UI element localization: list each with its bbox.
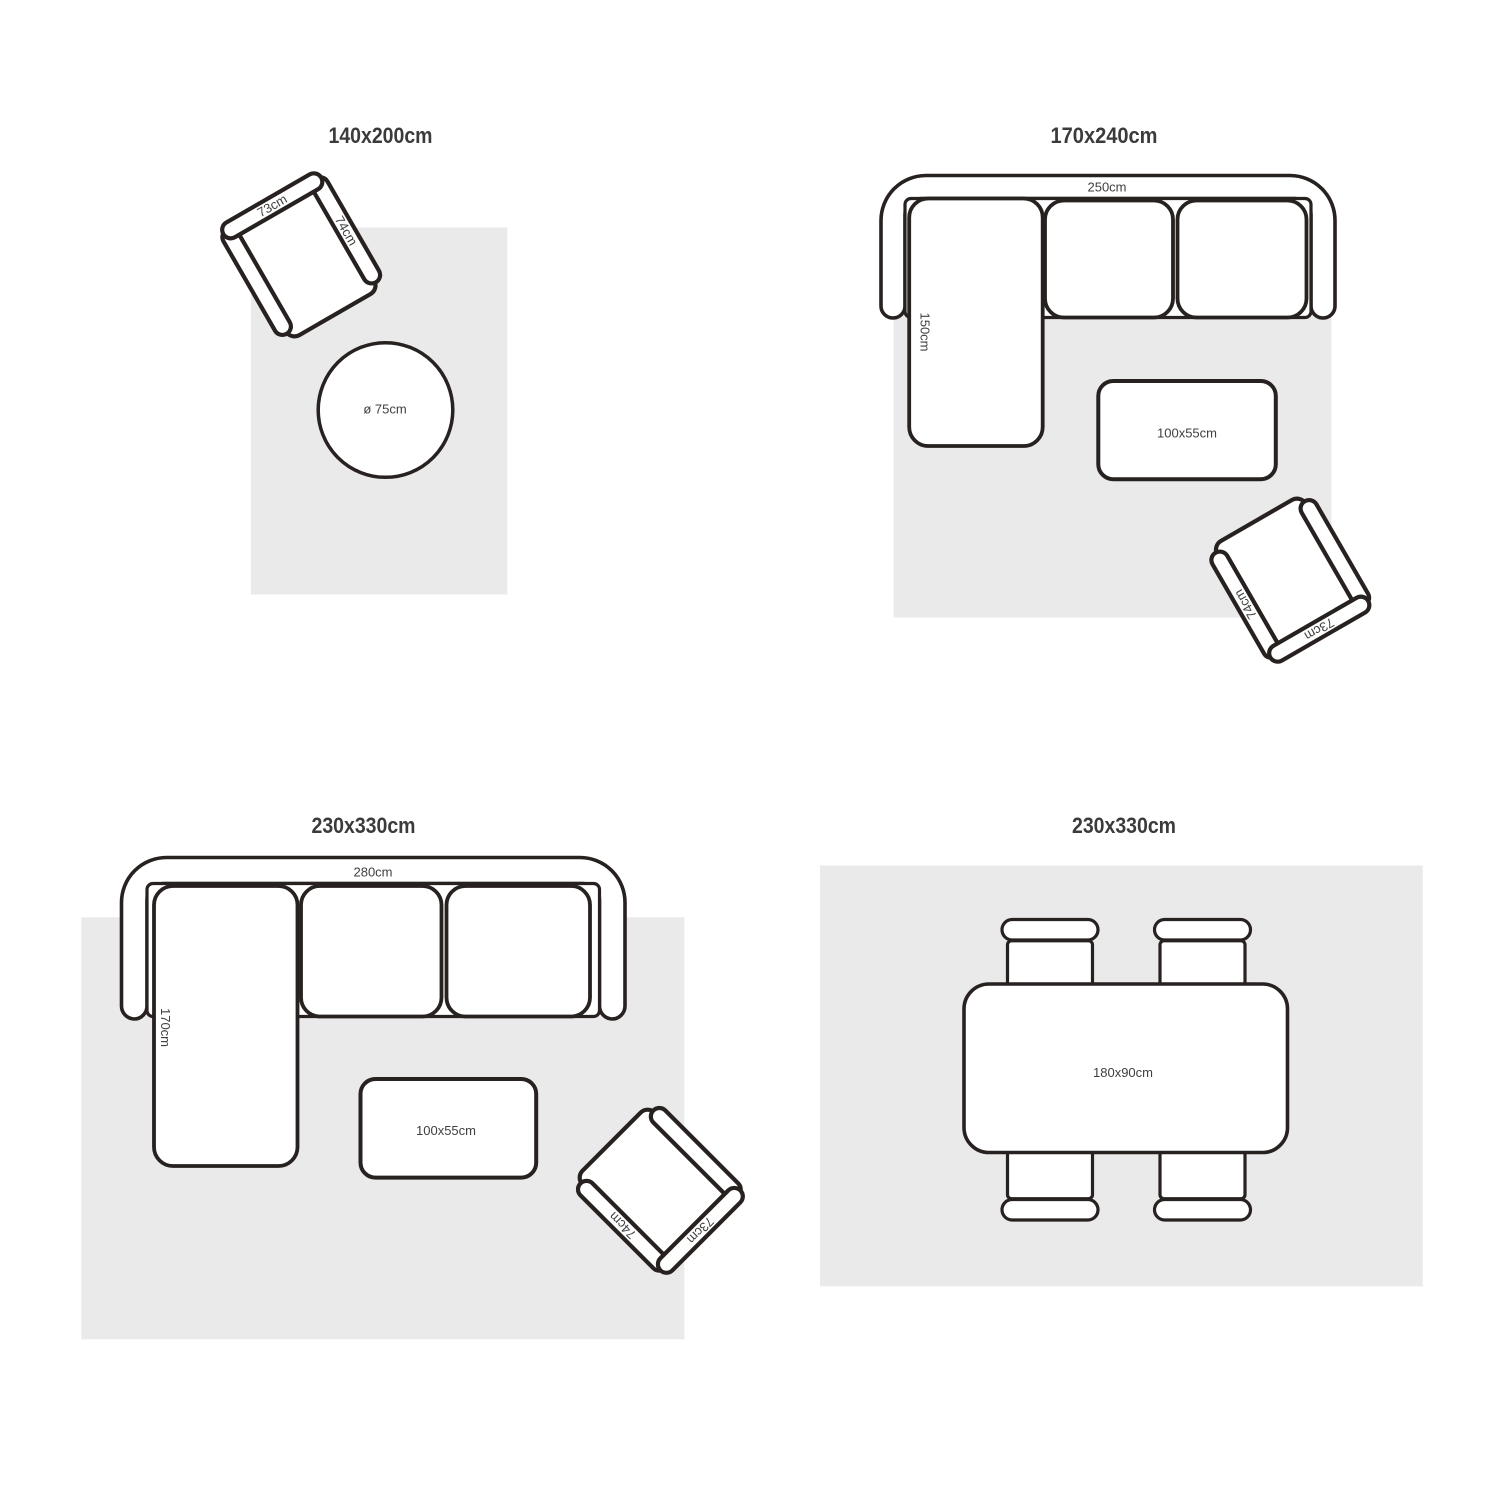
svg-text:250cm: 250cm xyxy=(1087,180,1126,195)
svg-text:280cm: 280cm xyxy=(353,865,392,880)
svg-text:140x200cm: 140x200cm xyxy=(329,123,433,148)
svg-text:100x55cm: 100x55cm xyxy=(1157,425,1217,440)
svg-text:180x90cm: 180x90cm xyxy=(1093,1065,1153,1080)
svg-text:ø 75cm: ø 75cm xyxy=(363,401,406,416)
svg-text:230x330cm: 230x330cm xyxy=(1072,813,1176,838)
svg-text:230x330cm: 230x330cm xyxy=(312,813,416,838)
svg-text:170x240cm: 170x240cm xyxy=(1051,123,1158,148)
svg-text:170cm: 170cm xyxy=(158,1008,173,1047)
svg-text:150cm: 150cm xyxy=(917,312,932,351)
svg-text:100x55cm: 100x55cm xyxy=(416,1123,476,1138)
